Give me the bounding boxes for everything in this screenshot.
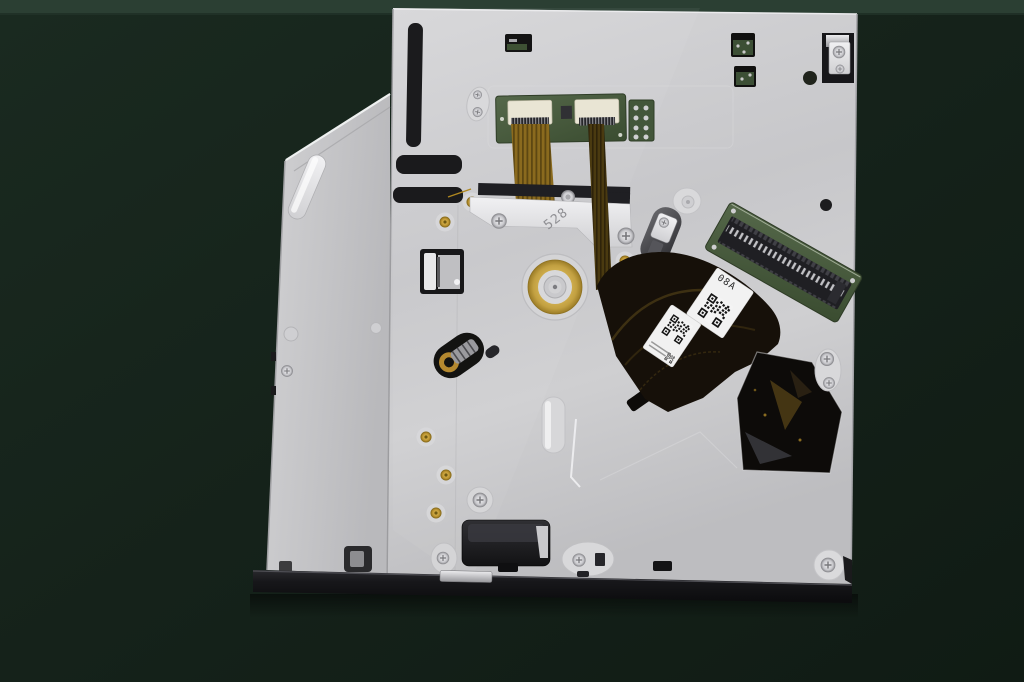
edge-notch [577,571,589,577]
latch-bracket [822,33,854,83]
screw-hole [803,71,817,85]
gold-screw [437,466,456,485]
chassis-plate: 528 [386,8,863,591]
tray-corner-tab [279,561,292,572]
gold-screw [417,428,436,447]
emboss-oval-screw [562,542,614,576]
pcb-window-right-1 [731,33,755,57]
smd-component [561,106,572,119]
tray-emboss-dot [371,323,382,334]
bottom-slot [653,561,672,571]
corner-screw-boss [814,550,844,580]
pcb-window-right-2 [734,66,756,87]
emboss-oval-screws [815,349,841,391]
eject-mech-cover [462,520,550,572]
photo-canvas: 528 [0,0,1024,682]
tray-emboss-dot [284,327,298,341]
vent-slot-vertical [406,23,423,147]
disc-tray [267,93,390,574]
tray-screw [281,365,292,376]
screw-hole [820,199,832,211]
chassis-screw-boss [467,487,493,513]
emboss-oval-screw [431,543,457,573]
emboss-boss [673,188,701,214]
tray-edge-notch [271,352,276,361]
tray-latch-cutout [344,546,372,572]
tray-edge-notch [271,386,276,395]
gold-screw [436,213,455,232]
pcb-window-small [505,34,532,52]
photo-scene: 528 [0,0,1024,682]
gold-screw [427,504,446,523]
test-pad-board [629,100,654,141]
ffc-connector-left [508,100,552,127]
ffc-connector-right [575,99,619,126]
emboss-pill-highlight [545,401,551,449]
mech-window [420,249,464,294]
vent-slot-1 [396,155,462,174]
bezel-clip [440,570,492,582]
spindle-motor [522,254,588,320]
